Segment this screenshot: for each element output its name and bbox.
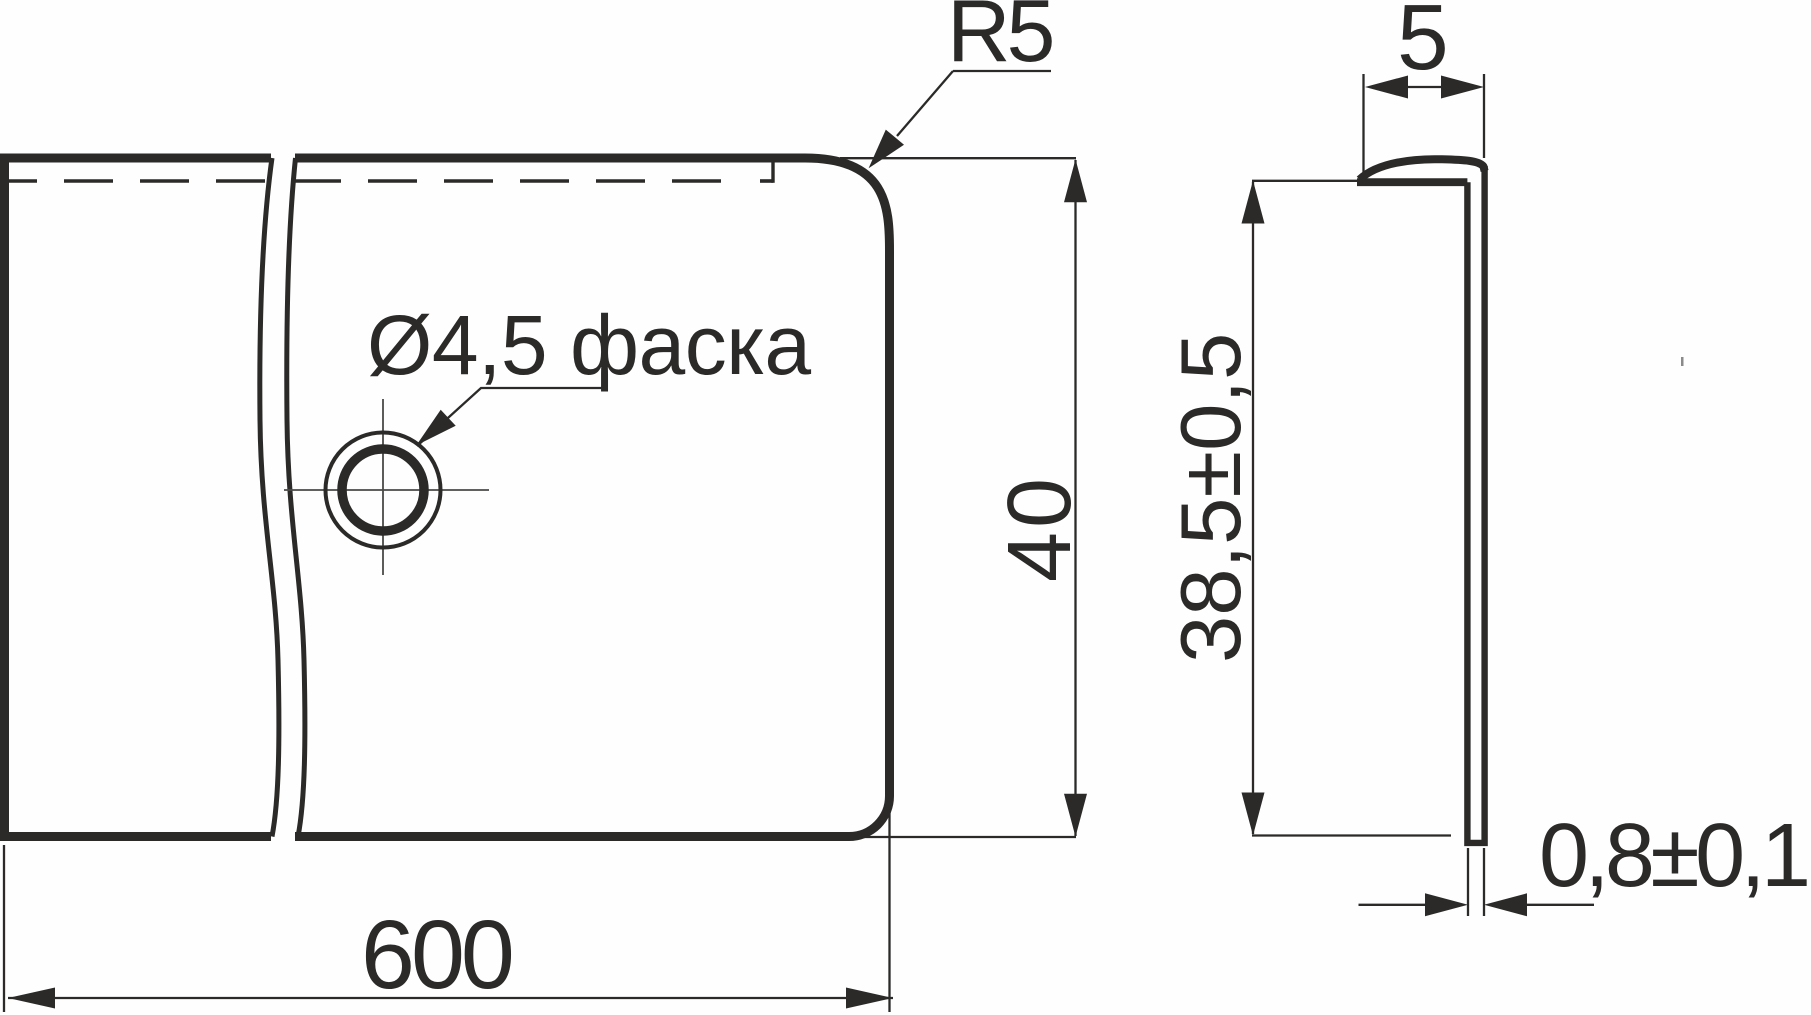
svg-text:600: 600 <box>361 900 512 1009</box>
svg-text:40: 40 <box>990 474 1090 582</box>
svg-text:38,5±0,5: 38,5±0,5 <box>1164 333 1259 663</box>
svg-text:R5: R5 <box>947 0 1053 80</box>
svg-text:5: 5 <box>1397 0 1449 89</box>
svg-text:Ø4,5 фаска: Ø4,5 фаска <box>367 298 811 392</box>
svg-text:0,8±0,1: 0,8±0,1 <box>1539 806 1807 906</box>
